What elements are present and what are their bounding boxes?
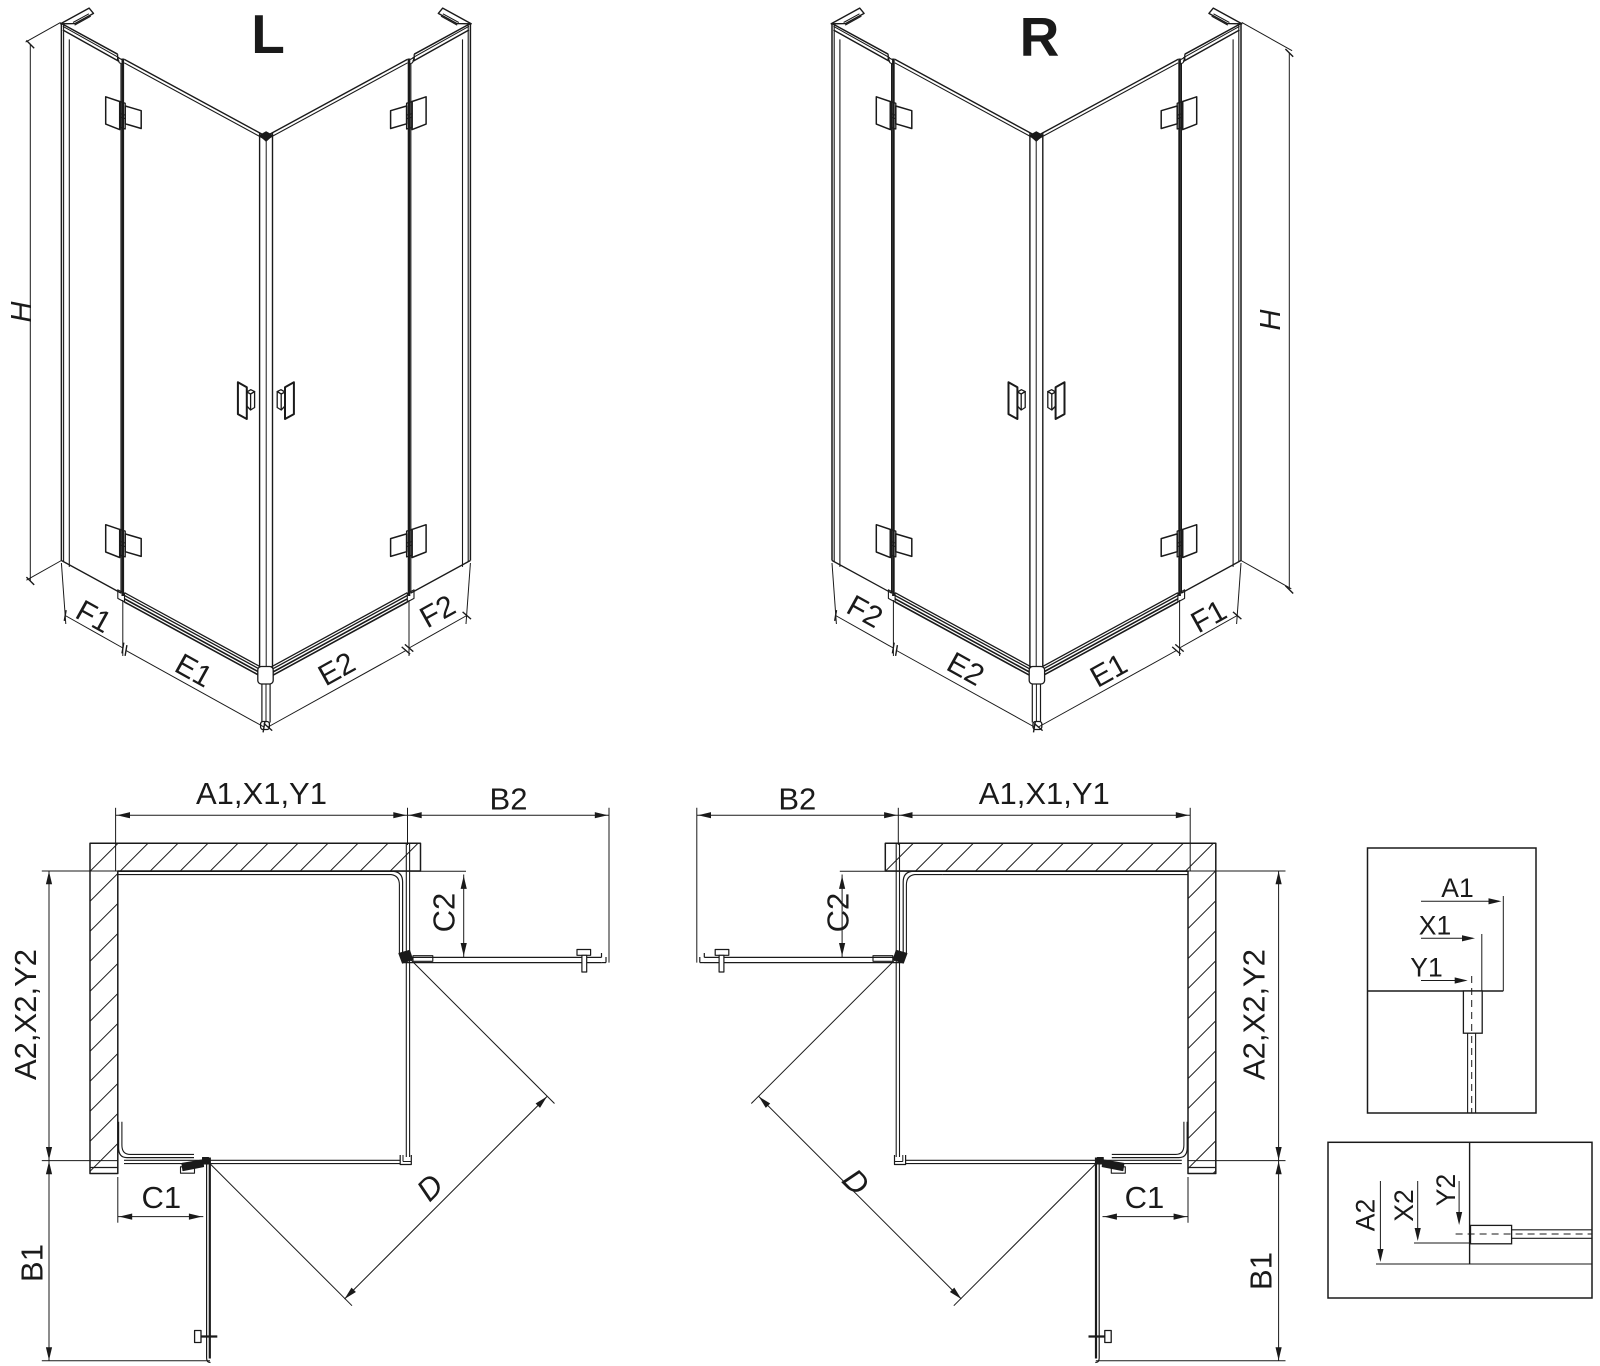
svg-text:X2: X2 (1389, 1189, 1419, 1221)
svg-text:C1: C1 (1125, 1180, 1165, 1215)
svg-text:L: L (251, 3, 285, 65)
svg-text:E2: E2 (941, 646, 989, 693)
svg-text:E1: E1 (169, 648, 217, 695)
svg-text:Y2: Y2 (1431, 1174, 1461, 1206)
svg-text:B2: B2 (778, 782, 816, 817)
svg-text:X1: X1 (1419, 911, 1451, 941)
svg-text:A1,X1,Y1: A1,X1,Y1 (979, 776, 1110, 811)
svg-text:C2: C2 (820, 893, 855, 933)
svg-text:A2: A2 (1351, 1199, 1381, 1231)
svg-text:E1: E1 (1085, 648, 1133, 695)
svg-text:C2: C2 (427, 893, 462, 933)
svg-text:A1,X1,Y1: A1,X1,Y1 (196, 776, 327, 811)
svg-text:Y1: Y1 (1410, 953, 1442, 983)
svg-text:F1: F1 (1186, 594, 1233, 640)
svg-text:A2,X2,Y2: A2,X2,Y2 (8, 949, 43, 1080)
svg-text:A2,X2,Y2: A2,X2,Y2 (1237, 949, 1272, 1080)
svg-text:C1: C1 (141, 1180, 181, 1215)
svg-text:H: H (6, 301, 38, 322)
svg-text:E2: E2 (313, 646, 361, 693)
svg-text:A1: A1 (1441, 873, 1473, 903)
svg-text:D: D (836, 1162, 877, 1203)
svg-text:F2: F2 (841, 589, 888, 635)
svg-text:B2: B2 (490, 782, 528, 817)
svg-text:D: D (410, 1167, 451, 1208)
svg-text:B1: B1 (1244, 1252, 1279, 1290)
svg-text:H: H (1255, 309, 1287, 330)
svg-text:R: R (1020, 6, 1060, 68)
svg-text:F2: F2 (414, 589, 461, 635)
svg-text:B1: B1 (15, 1244, 50, 1282)
svg-text:F1: F1 (70, 594, 117, 640)
